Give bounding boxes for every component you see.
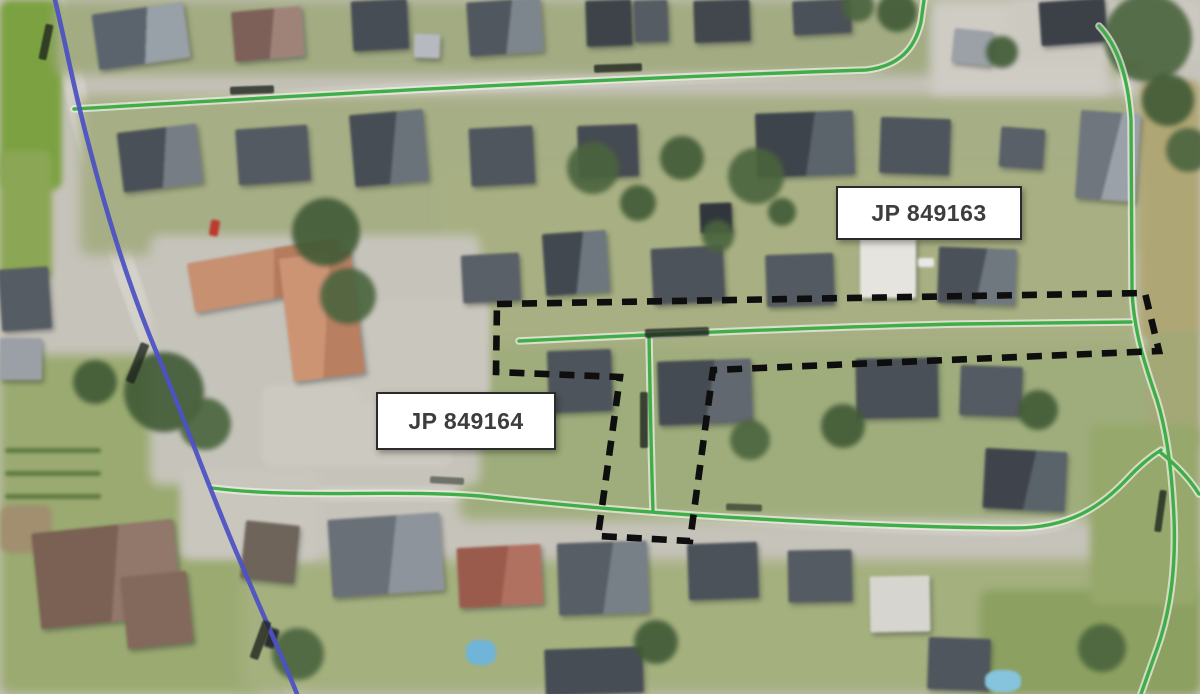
road-number-smudge: [594, 63, 642, 73]
road-number-smudge: [640, 392, 648, 448]
gis-overlay: [0, 0, 1200, 694]
road-label-text: JP 849164: [408, 408, 523, 435]
road-label-jp-849163: JP 849163: [836, 186, 1022, 240]
green-road-top: [74, 0, 924, 109]
road-number-smudge: [726, 503, 762, 511]
green-road-lower: [212, 450, 1161, 528]
road-number-smudge: [230, 85, 274, 95]
green-road-middle-casing: [519, 322, 1131, 511]
road-label-text: JP 849163: [871, 200, 986, 227]
aerial-map-canvas[interactable]: JP 849163 JP 849164: [0, 0, 1200, 694]
green-road-right-casing: [1099, 26, 1199, 694]
road-label-jp-849164: JP 849164: [376, 392, 556, 450]
green-road-top-casing: [74, 0, 924, 109]
green-road-right: [1099, 26, 1174, 694]
